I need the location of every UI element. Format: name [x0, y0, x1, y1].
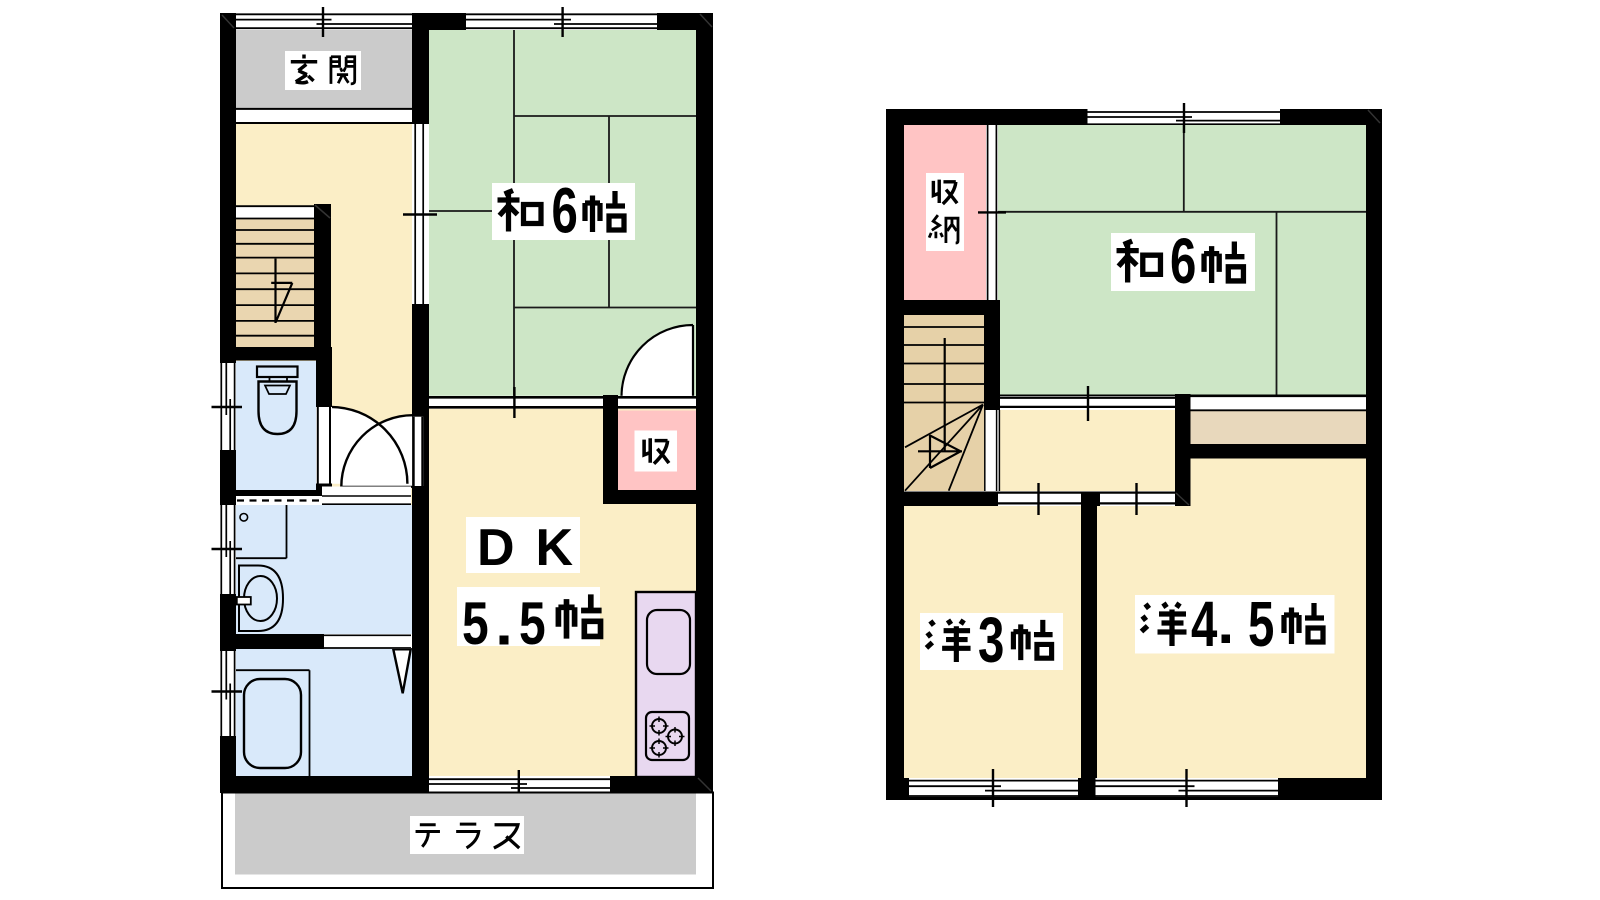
svg-text:6: 6	[1170, 225, 1196, 297]
svg-text:5: 5	[1248, 588, 1274, 660]
svg-text:4: 4	[1191, 588, 1217, 660]
svg-text:6: 6	[552, 175, 578, 247]
svg-text:5: 5	[519, 590, 546, 657]
svg-text:3: 3	[978, 604, 1004, 676]
svg-text:DK: DK	[477, 519, 594, 577]
svg-text:5: 5	[462, 590, 489, 657]
